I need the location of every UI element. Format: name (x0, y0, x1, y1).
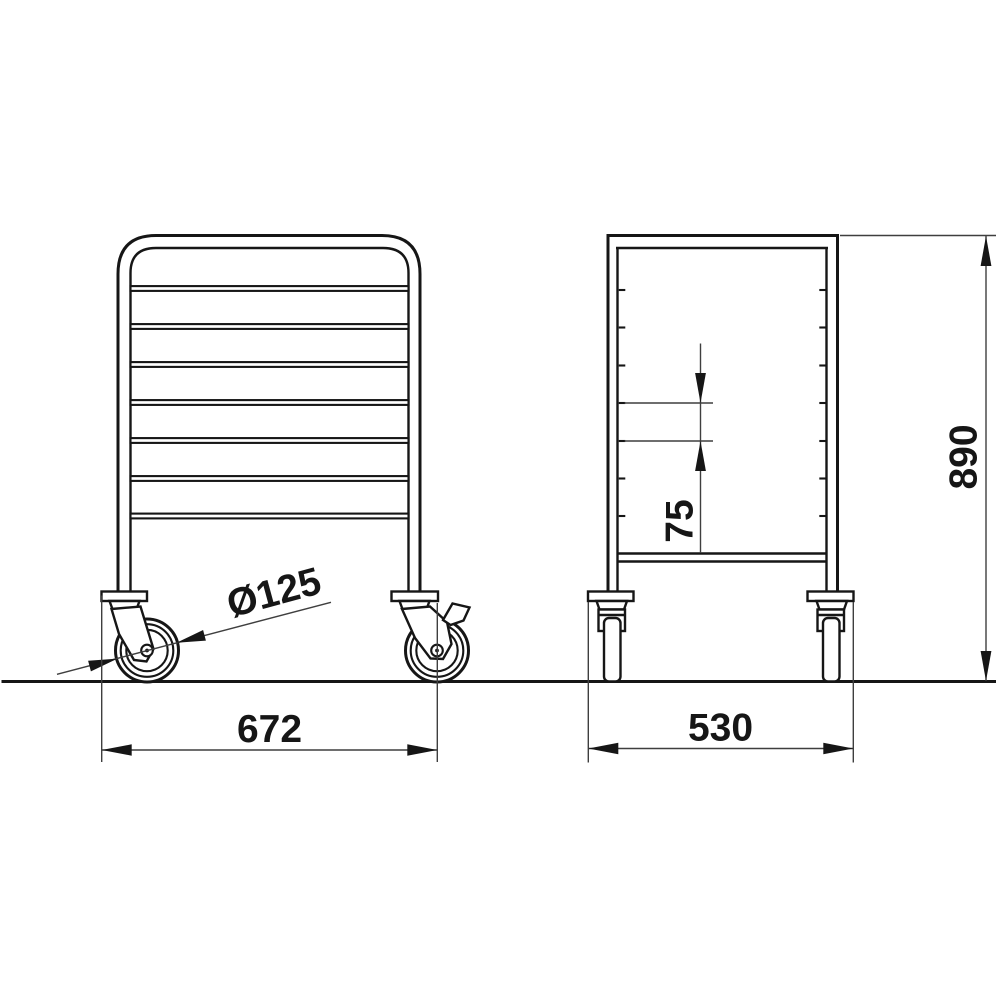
slide-pitch-label: 75 (659, 499, 702, 542)
arrowhead (177, 630, 206, 643)
front-view (102, 236, 470, 683)
arrowhead (88, 659, 117, 672)
overall-width-label: 672 (237, 708, 302, 751)
brake-lever (443, 604, 470, 626)
rail (131, 362, 409, 367)
front-caster-left (110, 601, 179, 682)
front-rails (131, 286, 409, 518)
overall-height-label: 890 (943, 424, 986, 489)
caster-plate (588, 592, 634, 602)
caster-plate (392, 592, 439, 602)
drawing-page: Ø125 672 530 890 75 (0, 0, 1000, 1000)
caster-plate (102, 592, 148, 602)
side-caster-right (817, 601, 848, 682)
rail (131, 476, 409, 481)
arrowhead (823, 743, 853, 754)
arrowhead (981, 651, 992, 681)
rail (131, 514, 409, 519)
arrowhead (102, 744, 132, 755)
caster-wheel (604, 618, 621, 682)
side-caster-left (597, 601, 628, 682)
dim-overall-height: 890 (840, 236, 996, 682)
trolley-technical-drawing: Ø125 672 530 890 75 (0, 0, 1000, 1000)
front-caster-right (400, 601, 470, 682)
caster-diameter-label: Ø125 (222, 560, 325, 627)
arrowhead (695, 373, 706, 403)
rail (131, 324, 409, 329)
caster-plate (808, 592, 854, 602)
rail (131, 438, 409, 443)
overall-depth-label: 530 (688, 707, 753, 750)
side-view (588, 236, 854, 682)
arrowhead (981, 236, 992, 266)
side-bottom-rail (618, 554, 827, 562)
rail (131, 286, 409, 291)
caster-neck (597, 601, 628, 610)
dim-slide-pitch: 75 (625, 344, 714, 554)
rail (131, 400, 409, 405)
arrowhead (407, 744, 437, 755)
arrowhead (695, 441, 706, 471)
dim-caster-diameter: Ø125 (57, 560, 331, 675)
caster-neck (817, 601, 848, 610)
arrowhead (588, 743, 618, 754)
caster-wheel (823, 618, 840, 682)
side-frame (607, 236, 840, 593)
